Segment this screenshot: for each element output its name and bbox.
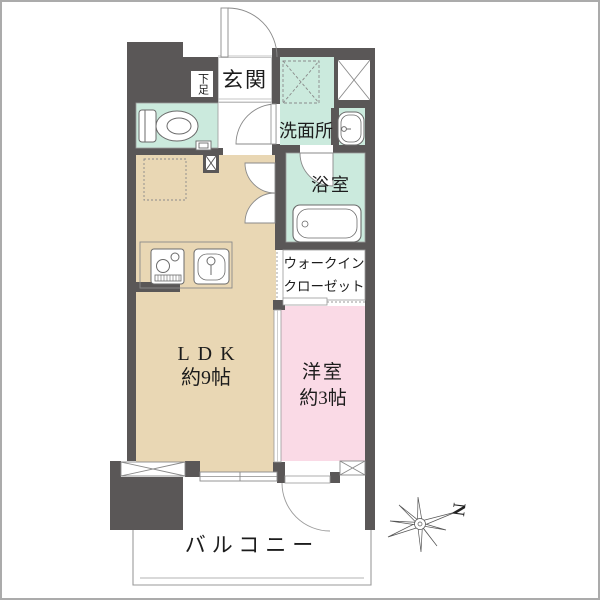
western-room-label-name: 洋室 bbox=[281, 360, 365, 386]
ldk-balcony-window-icon bbox=[200, 472, 277, 481]
western-room-window-icon bbox=[340, 461, 365, 475]
compass-icon bbox=[388, 497, 456, 552]
walk-in-closet-label-line2: クローゼット bbox=[282, 275, 366, 298]
washroom-label: 洗面所 bbox=[277, 117, 335, 143]
refrigerator-space-icon bbox=[144, 159, 186, 200]
walk-in-closet-label: ウォークイン クローゼット bbox=[282, 252, 366, 298]
floor-plan: 下足 玄関 洗面所 浴室 ウォークイン クローゼット LDK 約9帖 洋室 約3… bbox=[0, 0, 600, 600]
ldk-door-icon bbox=[245, 163, 275, 223]
bathroom-label: 浴室 bbox=[299, 171, 363, 197]
walk-in-closet-label-line1: ウォークイン bbox=[282, 252, 366, 275]
shoe-cabinet-label: 下足 bbox=[197, 73, 208, 95]
western-room-label-size: 約3帖 bbox=[281, 386, 365, 412]
kitchen-sink-icon bbox=[194, 249, 229, 284]
western-room-label: 洋室 約3帖 bbox=[281, 360, 365, 412]
genkan-label: 玄関 bbox=[218, 64, 272, 94]
washroom-door-icon bbox=[236, 104, 276, 144]
balcony-label: バルコニー bbox=[133, 529, 371, 559]
shoe-cabinet: 下足 bbox=[189, 69, 215, 99]
ldk-label: LDK 約9帖 bbox=[136, 342, 276, 390]
washing-machine-space-icon bbox=[283, 61, 319, 103]
stove-icon bbox=[151, 249, 184, 284]
small-pipe-box-icon bbox=[203, 153, 219, 173]
toilet-paper-holder-icon bbox=[196, 141, 211, 150]
entrance-door-icon bbox=[221, 8, 277, 57]
western-room-balcony-door-icon bbox=[282, 476, 330, 531]
bathtub-icon bbox=[293, 205, 361, 242]
compass-north-label: N bbox=[452, 499, 465, 520]
ldk-label-size: 約9帖 bbox=[136, 366, 276, 390]
ldk-label-name: LDK bbox=[136, 342, 276, 366]
toilet-icon bbox=[139, 110, 198, 142]
pipe-shaft-icon bbox=[334, 57, 374, 104]
ldk-side-window-icon bbox=[121, 462, 185, 476]
wash-basin-icon bbox=[338, 112, 364, 145]
